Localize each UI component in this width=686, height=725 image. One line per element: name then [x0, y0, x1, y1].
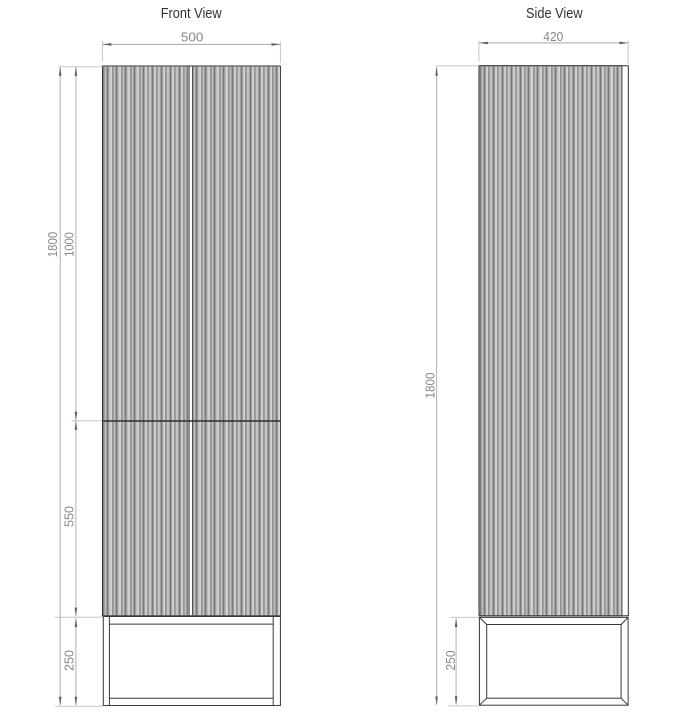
svg-text:250: 250	[443, 651, 458, 671]
svg-text:550: 550	[61, 506, 76, 527]
svg-text:1800: 1800	[45, 232, 60, 258]
svg-text:420: 420	[543, 29, 563, 44]
svg-text:250: 250	[61, 650, 76, 671]
svg-text:500: 500	[181, 29, 204, 44]
svg-text:1800: 1800	[422, 373, 437, 399]
svg-text:Front View: Front View	[161, 5, 222, 22]
svg-text:Side View: Side View	[526, 5, 583, 22]
svg-text:1000: 1000	[61, 232, 76, 257]
